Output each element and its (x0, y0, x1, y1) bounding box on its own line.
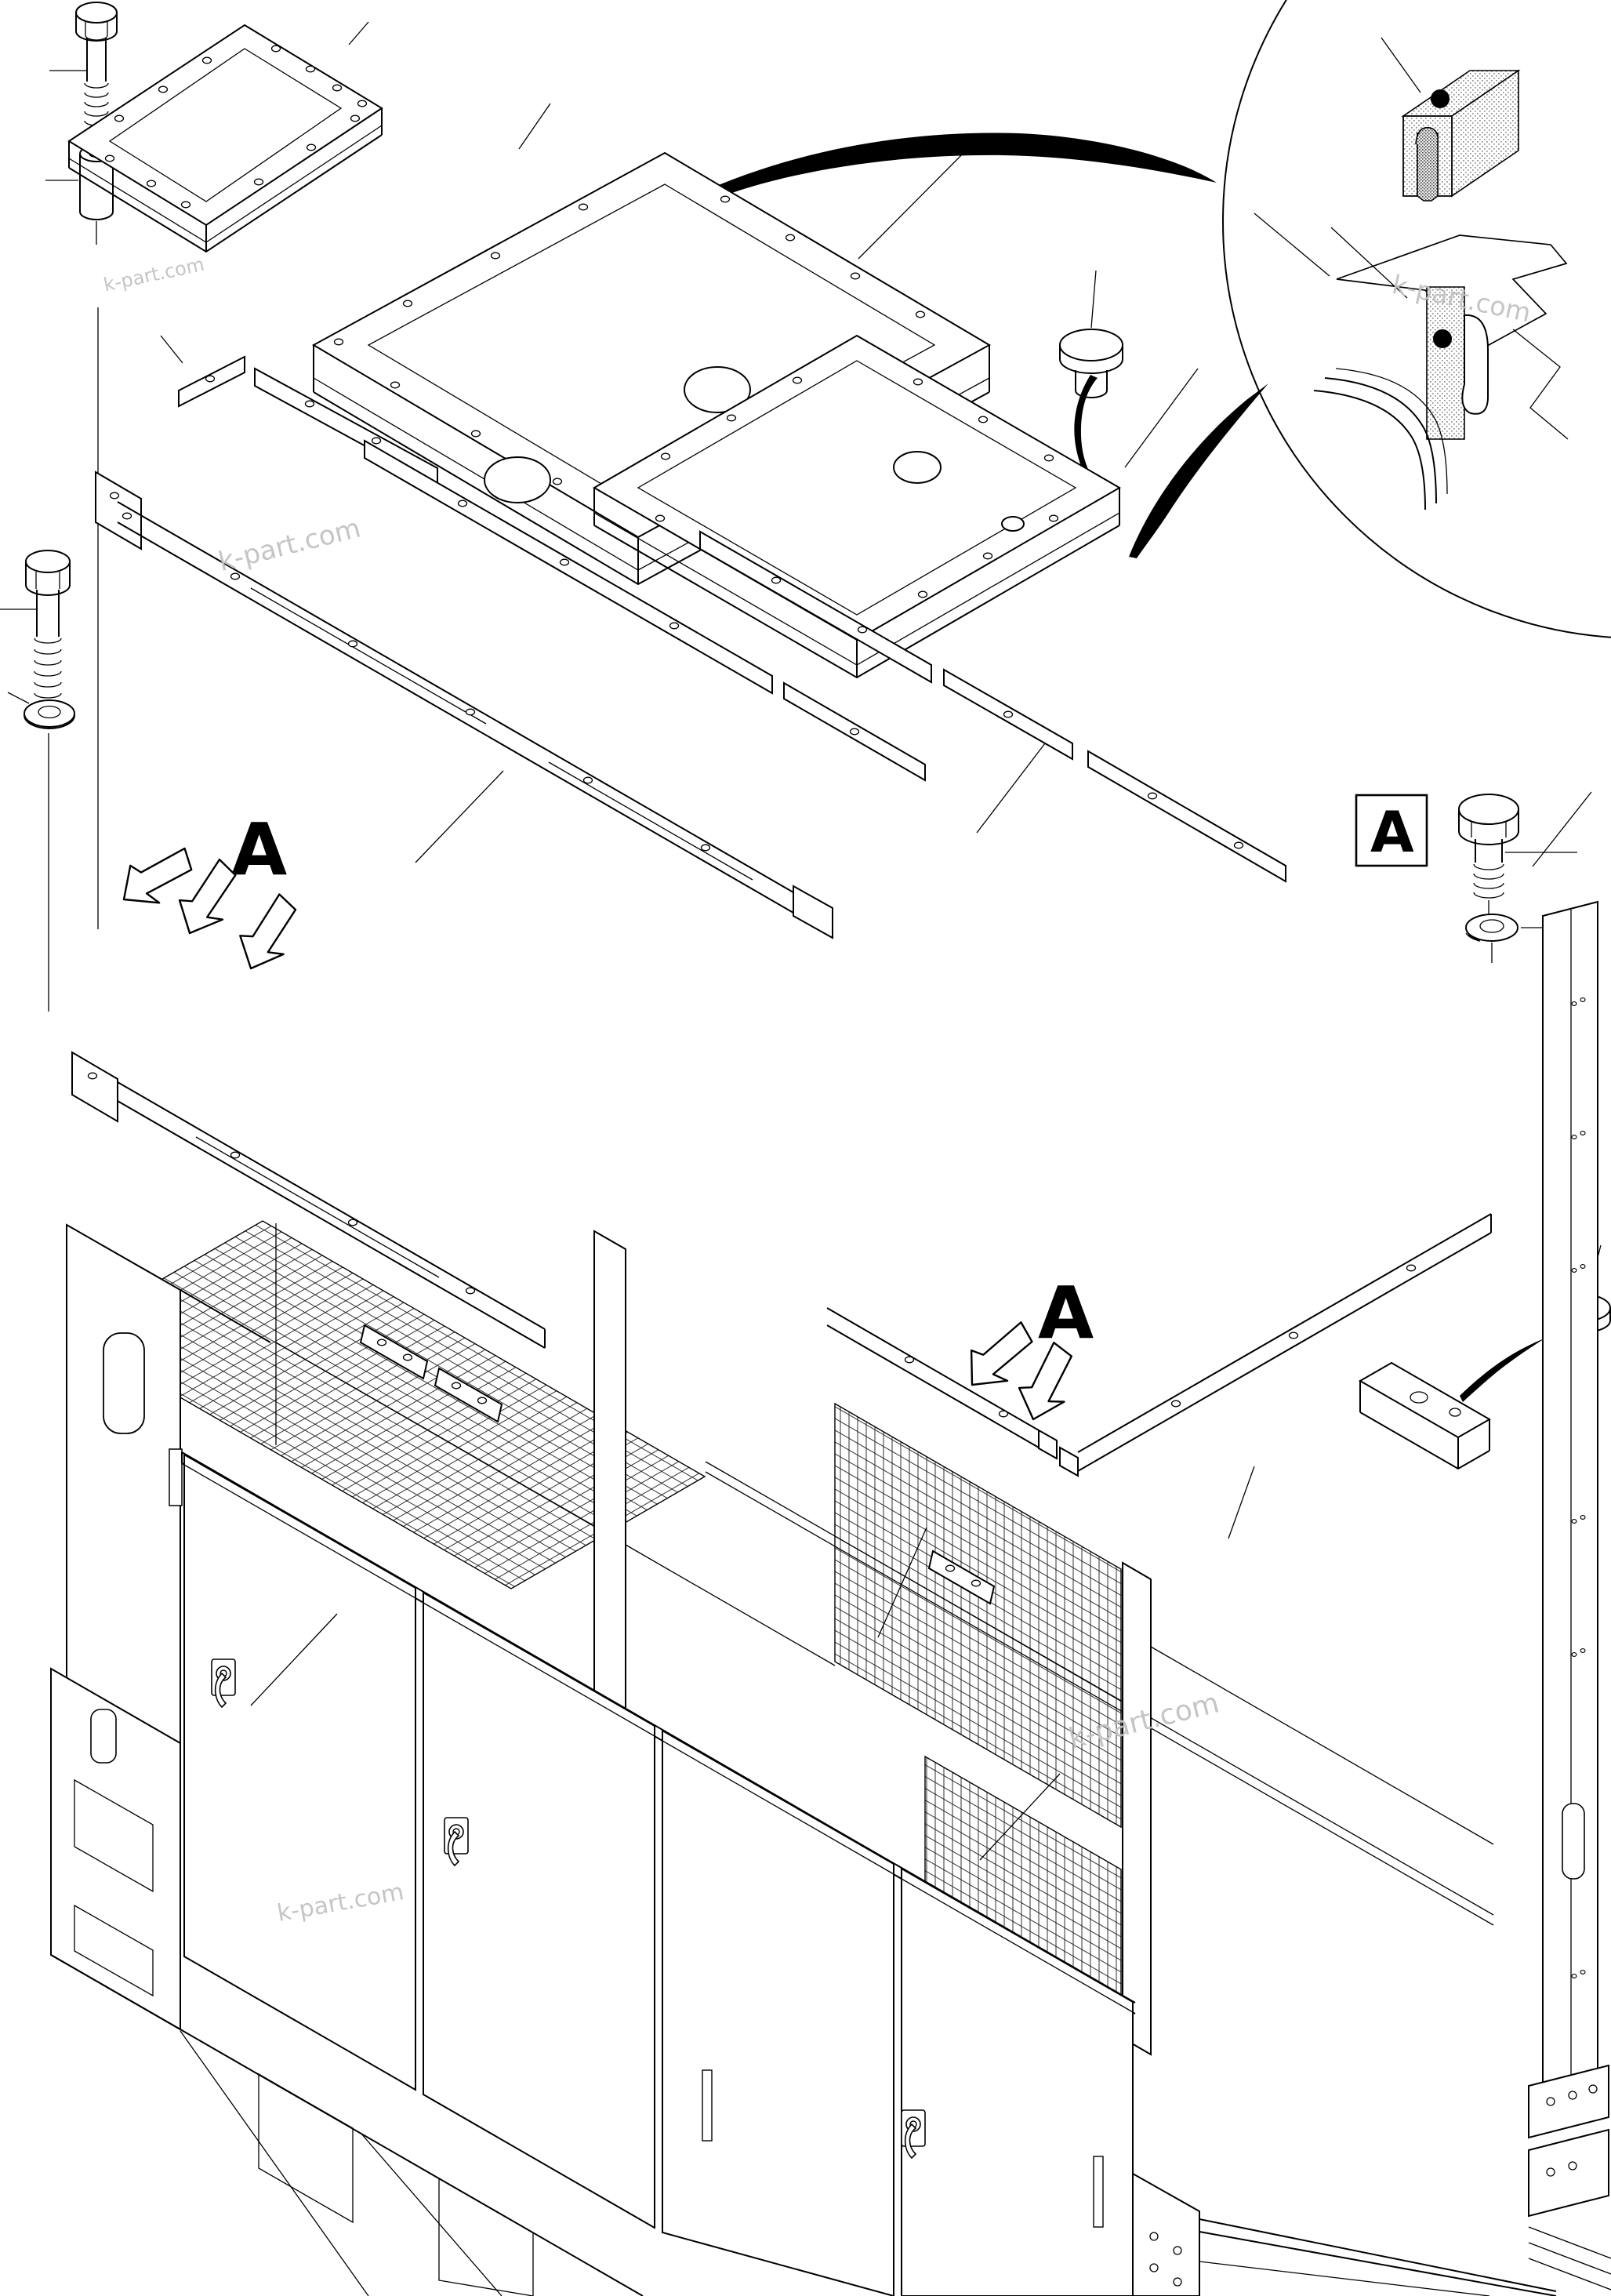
panel3-hole-small (1002, 517, 1024, 531)
installed-leader-line-1 (1254, 213, 1330, 276)
exploded-parts-diagram: k-part.com (0, 0, 1611, 2296)
detail-view-circle: k-part.com (1223, 0, 1611, 638)
panel3-leader-line (1125, 369, 1198, 467)
post-slot (1562, 1804, 1584, 1879)
panel3-hole-1 (894, 452, 941, 483)
swoosh-arrow-corner-icon (1129, 383, 1268, 558)
bottom-right-corner (1133, 2174, 1556, 2296)
trim-strip (1088, 751, 1286, 881)
hex-bolt-3-icon (1459, 794, 1518, 914)
panel2-leader-line (519, 104, 550, 149)
bolt-and-washer-callout (0, 307, 98, 1012)
flat-washer-icon (24, 700, 74, 728)
latch-slot (169, 1449, 182, 1506)
seal-position-dot (1431, 89, 1450, 108)
right-corner-post (1529, 902, 1611, 2290)
swoosh-arrow-to-detail-icon (688, 133, 1217, 202)
assembly-direction-right: A (955, 1271, 1094, 1427)
trim-strip (784, 683, 925, 780)
trim-strip (161, 336, 245, 406)
spring-washer-icon (1466, 914, 1518, 963)
assembly-direction-left: A (110, 808, 306, 979)
door-panel-3 (662, 1731, 894, 2296)
panel1-leader-line (349, 22, 368, 45)
watermark: k-part.com (216, 513, 364, 579)
direction-label-a-right: A (1038, 1271, 1094, 1355)
roof-panel-1 (69, 22, 382, 252)
washer-leader-line (8, 692, 29, 703)
inner-post (1123, 1563, 1151, 2054)
housing-body (51, 902, 1611, 2296)
base-vent-slot (91, 1709, 116, 1763)
trim-strip (944, 670, 1072, 833)
swoosh-arrow-plug2-icon (1460, 1338, 1546, 1402)
direction-arrow-icon (230, 887, 306, 979)
frame-rail-right (1060, 1214, 1491, 1476)
seal-leader-line (1381, 38, 1421, 93)
vent-slot (103, 1333, 144, 1433)
detail-reference-label: A (1370, 799, 1414, 865)
door-panel-1 (184, 1455, 415, 2090)
frame-corner-block (1360, 1363, 1489, 1469)
plug1-leader-line (1091, 271, 1096, 328)
edge-trim-seal-profile-icon (1381, 38, 1518, 201)
panel2-hole-1 (484, 457, 550, 503)
watermark: k-part.com (102, 253, 207, 296)
parts-diagram-canvas: k-part.com (0, 0, 1611, 2296)
seal-position-dot-2 (1433, 329, 1452, 348)
direction-label-a-left: A (231, 808, 287, 892)
